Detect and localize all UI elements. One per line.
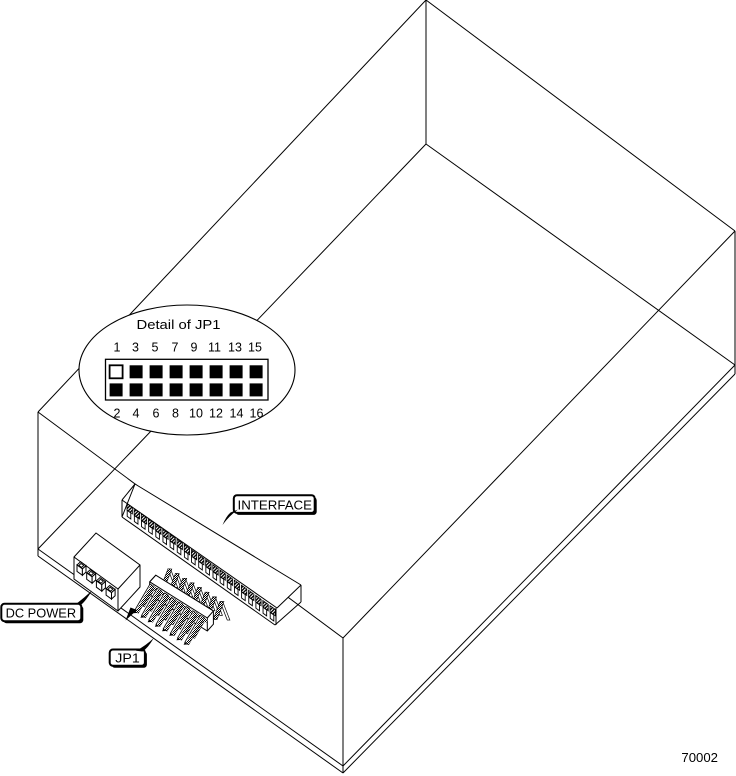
svg-text:15: 15 (248, 341, 262, 355)
svg-text:8: 8 (172, 407, 179, 421)
svg-text:INTERFACE: INTERFACE (238, 498, 313, 512)
svg-text:2: 2 (114, 407, 121, 421)
svg-text:Detail of JP1: Detail of JP1 (137, 317, 221, 332)
svg-text:7: 7 (172, 341, 179, 355)
svg-text:11: 11 (208, 341, 221, 355)
svg-text:9: 9 (191, 341, 198, 355)
svg-text:DC POWER: DC POWER (6, 606, 77, 620)
svg-text:16: 16 (250, 407, 264, 421)
svg-text:13: 13 (228, 341, 242, 355)
svg-text:12: 12 (209, 407, 223, 421)
svg-text:4: 4 (133, 407, 140, 421)
svg-text:5: 5 (152, 341, 159, 355)
svg-text:JP1: JP1 (115, 652, 140, 666)
svg-text:10: 10 (189, 407, 203, 421)
svg-text:70002: 70002 (681, 750, 718, 765)
svg-text:3: 3 (132, 341, 139, 355)
svg-text:14: 14 (230, 407, 244, 421)
svg-text:1: 1 (114, 341, 121, 355)
svg-text:6: 6 (153, 407, 160, 421)
